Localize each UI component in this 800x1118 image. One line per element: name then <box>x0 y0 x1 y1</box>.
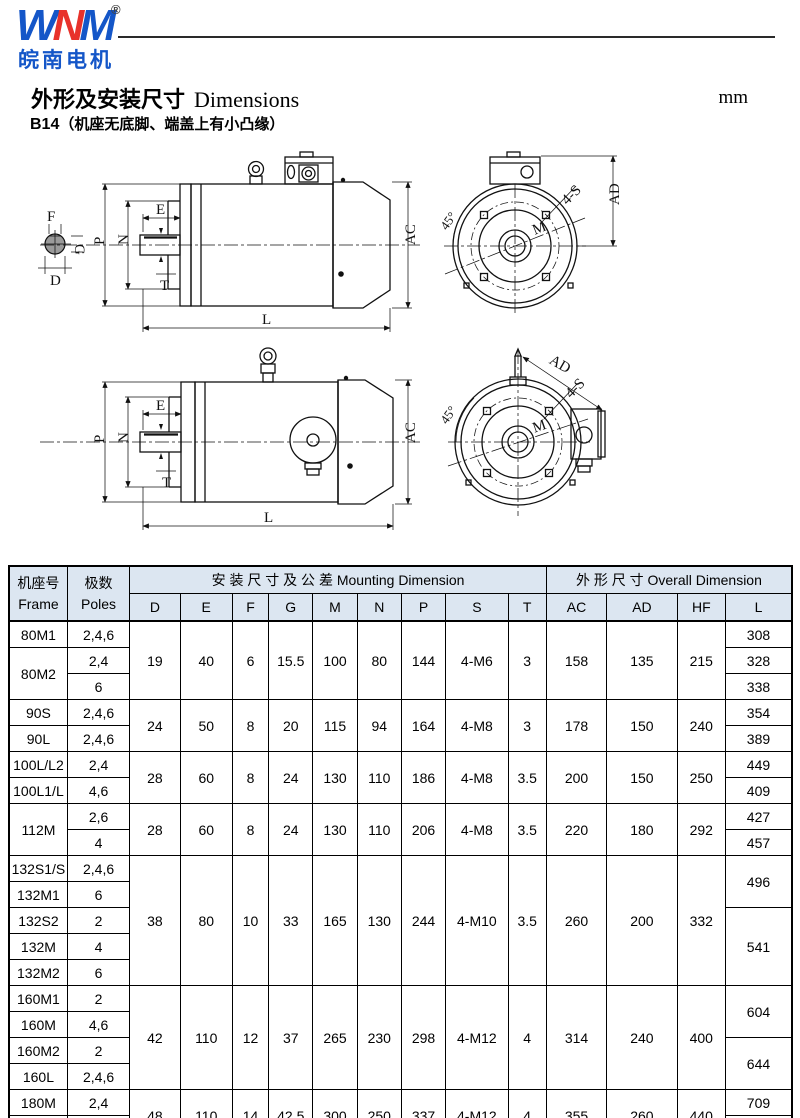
dim-label-m: M <box>530 219 548 239</box>
table-cell: 3 <box>508 621 546 700</box>
table-row: 160M124211012372652302984-M1243142404006… <box>9 986 792 1012</box>
table-cell: 496 <box>725 856 792 908</box>
motor-side-view-brake: P N E <box>40 348 420 530</box>
table-row: 90S2,4,62450820115941644-M83178150240354 <box>9 700 792 726</box>
dimension-table-body: 80M12,4,61940615.5100801444-M63158135215… <box>9 621 792 1118</box>
table-cell: 8 <box>232 752 268 804</box>
table-cell: 709 <box>725 1090 792 1116</box>
table-cell: 94 <box>357 700 401 752</box>
table-cell: 112M <box>9 804 67 856</box>
table-cell: 265 <box>313 986 357 1090</box>
table-cell: 338 <box>725 674 792 700</box>
table-cell: 409 <box>725 778 792 804</box>
table-cell: 160M <box>9 1012 67 1038</box>
logo-letter-w: W <box>16 1 53 50</box>
unit-label: mm <box>718 87 748 109</box>
logo-letter-m: M <box>79 1 111 50</box>
mounting-header-zh: 安 装 尺 寸 及 公 差 <box>212 572 333 588</box>
col-header-ad: AD <box>607 594 677 622</box>
table-cell: 38 <box>130 856 180 986</box>
table-cell: 644 <box>725 1038 792 1090</box>
table-cell: 10 <box>232 856 268 986</box>
page-title-zh: 外形及安装尺寸 <box>31 87 185 112</box>
table-cell: 2,4,6 <box>67 856 129 882</box>
table-cell: 132M <box>9 934 67 960</box>
table-cell: 180 <box>607 804 677 856</box>
technical-drawings: F G D P N E <box>28 144 683 556</box>
dim-label-f: F <box>47 209 55 225</box>
table-cell: 332 <box>677 856 725 986</box>
table-cell: 250 <box>357 1090 401 1118</box>
table-cell: 314 <box>546 986 606 1090</box>
mount-type-code: B14 <box>30 116 59 133</box>
table-cell: 178 <box>546 700 606 752</box>
table-cell: 2 <box>67 1038 129 1064</box>
table-cell: 186 <box>401 752 445 804</box>
table-cell: 354 <box>725 700 792 726</box>
table-cell: 2,4 <box>67 1090 129 1116</box>
dim-label-l2: L <box>264 510 273 526</box>
mounting-header-en: Mounting Dimension <box>337 572 465 588</box>
wnm-logo: WNM® <box>16 4 121 46</box>
table-row: 100L/L22,428608241301101864-M83.52001502… <box>9 752 792 778</box>
table-cell: 15.5 <box>269 621 313 700</box>
dim-label-e2: E <box>156 398 165 414</box>
table-cell: 28 <box>130 804 180 856</box>
table-cell: 132M2 <box>9 960 67 986</box>
table-cell: 300 <box>313 1090 357 1118</box>
table-cell: 130 <box>313 804 357 856</box>
table-cell: 4,6 <box>67 778 129 804</box>
table-cell: 48 <box>130 1090 180 1118</box>
table-cell: 80 <box>180 856 232 986</box>
table-cell: 3.5 <box>508 804 546 856</box>
table-cell: 8 <box>232 700 268 752</box>
table-cell: 8 <box>232 804 268 856</box>
table-cell: 60 <box>180 804 232 856</box>
table-cell: 240 <box>677 700 725 752</box>
overall-header-zh: 外 形 尺 寸 <box>576 572 644 588</box>
table-cell: 144 <box>401 621 445 700</box>
table-cell: 4-M8 <box>446 700 508 752</box>
table-cell: 110 <box>357 752 401 804</box>
table-row: 112M2,628608241301102064-M83.52201802924… <box>9 804 792 830</box>
table-cell: 457 <box>725 830 792 856</box>
frame-header-zh: 机座号 <box>10 573 67 593</box>
table-cell: 33 <box>269 856 313 986</box>
col-header-e: E <box>180 594 232 622</box>
dim-label-n: N <box>116 234 132 245</box>
table-cell: 60 <box>180 752 232 804</box>
col-header-hf: HF <box>677 594 725 622</box>
col-header-n: N <box>357 594 401 622</box>
catalog-page: WNM® 皖南电机 外形及安装尺寸Dimensions mm B14（机座无底脚… <box>0 0 800 1118</box>
table-cell: 260 <box>546 856 606 986</box>
table-cell: 244 <box>401 856 445 986</box>
table-cell: 135 <box>607 621 677 700</box>
table-cell: 4-M12 <box>446 986 508 1090</box>
dim-label-ad2: AD <box>546 352 573 377</box>
table-cell: 19 <box>130 621 180 700</box>
table-cell: 160M2 <box>9 1038 67 1064</box>
table-cell: 355 <box>546 1090 606 1118</box>
table-cell: 24 <box>269 752 313 804</box>
table-cell: 200 <box>607 856 677 986</box>
table-cell: 132S1/S <box>9 856 67 882</box>
group-header-overall: 外 形 尺 寸 Overall Dimension <box>546 566 792 594</box>
mount-type-subtitle: B14（机座无底脚、端盖上有小凸缘） <box>30 113 284 134</box>
col-header-d: D <box>130 594 180 622</box>
col-header-f: F <box>232 594 268 622</box>
table-cell: 328 <box>725 648 792 674</box>
table-cell: 3.5 <box>508 752 546 804</box>
table-cell: 42 <box>130 986 180 1090</box>
poles-header-en: Poles <box>68 594 129 614</box>
table-cell: 206 <box>401 804 445 856</box>
table-cell: 100 <box>313 621 357 700</box>
table-cell: 3 <box>508 700 546 752</box>
table-cell: 2,4,6 <box>67 726 129 752</box>
col-header-poles: 极数 Poles <box>67 566 129 621</box>
table-cell: 160L <box>9 1064 67 1090</box>
table-cell: 230 <box>357 986 401 1090</box>
holes-label-2: 4-S <box>562 376 588 402</box>
table-cell: 14 <box>232 1090 268 1118</box>
table-cell: 4 <box>508 986 546 1090</box>
mount-type-note: （机座无底脚、端盖上有小凸缘） <box>59 116 284 133</box>
table-cell: 4-M10 <box>446 856 508 986</box>
table-cell: 4-M8 <box>446 752 508 804</box>
table-cell: 130 <box>357 856 401 986</box>
table-cell: 3.5 <box>508 856 546 986</box>
table-cell: 110 <box>180 1090 232 1118</box>
table-cell: 220 <box>546 804 606 856</box>
table-cell: 40 <box>180 621 232 700</box>
table-cell: 215 <box>677 621 725 700</box>
table-row: 180M2,4481101442.53002503374-M1243552604… <box>9 1090 792 1116</box>
table-cell: 4,6 <box>67 1012 129 1038</box>
table-cell: 427 <box>725 804 792 830</box>
table-cell: 12 <box>232 986 268 1090</box>
table-cell: 150 <box>607 700 677 752</box>
table-cell: 42.5 <box>269 1090 313 1118</box>
table-cell: 132M1 <box>9 882 67 908</box>
table-cell: 4 <box>67 830 129 856</box>
table-cell: 541 <box>725 908 792 986</box>
table-cell: 240 <box>607 986 677 1090</box>
dim-label-n2: N <box>116 432 132 443</box>
dim-label-t2: T <box>162 475 171 491</box>
table-cell: 2,6 <box>67 804 129 830</box>
table-cell: 440 <box>677 1090 725 1118</box>
header-rule <box>118 36 775 38</box>
table-cell: 449 <box>725 752 792 778</box>
page-title-en: Dimensions <box>194 87 299 112</box>
table-cell: 110 <box>357 804 401 856</box>
poles-header-zh: 极数 <box>68 573 129 593</box>
table-cell: 90S <box>9 700 67 726</box>
table-cell: 604 <box>725 986 792 1038</box>
table-cell: 80M1 <box>9 621 67 648</box>
table-cell: 164 <box>401 700 445 752</box>
holes-label: 4-S <box>559 182 585 208</box>
page-title: 外形及安装尺寸Dimensions <box>31 82 299 114</box>
table-cell: 50 <box>180 700 232 752</box>
dim-label-ac2: AC <box>403 422 419 443</box>
table-cell: 165 <box>313 856 357 986</box>
motor-side-view-b14: F G D P N E <box>38 152 420 332</box>
table-cell: 4 <box>67 934 129 960</box>
table-cell: 200 <box>546 752 606 804</box>
dim-label-g: G <box>71 244 87 255</box>
table-cell: 2,4,6 <box>67 1064 129 1090</box>
group-header-mounting: 安 装 尺 寸 及 公 差 Mounting Dimension <box>130 566 547 594</box>
dim-label-e: E <box>156 202 165 218</box>
table-cell: 80 <box>357 621 401 700</box>
table-cell: 80M2 <box>9 648 67 700</box>
table-cell: 2,4,6 <box>67 621 129 648</box>
table-cell: 2 <box>67 986 129 1012</box>
dim-label-p: P <box>92 237 108 245</box>
table-cell: 2,4 <box>67 648 129 674</box>
table-cell: 90L <box>9 726 67 752</box>
dim-label-d: D <box>50 273 61 289</box>
table-cell: 4-M12 <box>446 1090 508 1118</box>
table-cell: 260 <box>607 1090 677 1118</box>
overall-header-en: Overall Dimension <box>648 572 762 588</box>
table-cell: 28 <box>130 752 180 804</box>
dim-label-t: T <box>160 278 169 294</box>
table-cell: 6 <box>67 960 129 986</box>
table-cell: 130 <box>313 752 357 804</box>
col-header-s: S <box>446 594 508 622</box>
motor-front-view-brake: M 45° 4-S AD <box>437 349 605 516</box>
table-cell: 20 <box>269 700 313 752</box>
table-cell: 180M <box>9 1090 67 1116</box>
table-header-row-groups: 机座号 Frame 极数 Poles 安 装 尺 寸 及 公 差 Mountin… <box>9 566 792 594</box>
table-cell: 2,4,6 <box>67 700 129 726</box>
table-cell: 158 <box>546 621 606 700</box>
frame-header-en: Frame <box>10 594 67 614</box>
col-header-frame: 机座号 Frame <box>9 566 67 621</box>
col-header-p: P <box>401 594 445 622</box>
table-cell: 4-M6 <box>446 621 508 700</box>
table-cell: 400 <box>677 986 725 1090</box>
col-header-m: M <box>313 594 357 622</box>
table-cell: 132S2 <box>9 908 67 934</box>
table-cell: 115 <box>313 700 357 752</box>
col-header-t: T <box>508 594 546 622</box>
table-cell: 4-M8 <box>446 804 508 856</box>
table-cell: 2,4 <box>67 752 129 778</box>
col-header-ac: AC <box>546 594 606 622</box>
table-cell: 298 <box>401 986 445 1090</box>
company-name: 皖南电机 <box>18 44 114 74</box>
table-cell: 337 <box>401 1090 445 1118</box>
dim-label-ac: AC <box>403 224 419 245</box>
registered-mark-icon: ® <box>111 2 121 17</box>
table-cell: 100L/L2 <box>9 752 67 778</box>
table-cell: 37 <box>269 986 313 1090</box>
table-cell: 6 <box>67 882 129 908</box>
table-cell: 250 <box>677 752 725 804</box>
logo-letter-n: N <box>53 1 80 50</box>
table-cell: 6 <box>232 621 268 700</box>
table-cell: 389 <box>725 726 792 752</box>
table-row: 80M12,4,61940615.5100801444-M63158135215… <box>9 621 792 648</box>
table-cell: 110 <box>180 986 232 1090</box>
motor-front-view-b14: M 45° 4-S AD <box>437 152 623 316</box>
col-header-l: L <box>725 594 792 622</box>
table-row: 132S1/S2,4,6388010331651302444-M103.5260… <box>9 856 792 882</box>
dimension-table: 机座号 Frame 极数 Poles 安 装 尺 寸 及 公 差 Mountin… <box>8 565 793 1118</box>
dim-label-l: L <box>262 312 271 328</box>
table-cell: 100L1/L <box>9 778 67 804</box>
table-cell: 160M1 <box>9 986 67 1012</box>
angle-label-2: 45° <box>437 403 460 427</box>
table-cell: 2 <box>67 908 129 934</box>
table-cell: 4 <box>508 1090 546 1118</box>
table-cell: 150 <box>607 752 677 804</box>
col-header-g: G <box>269 594 313 622</box>
table-cell: 292 <box>677 804 725 856</box>
table-cell: 308 <box>725 621 792 648</box>
angle-label: 45° <box>437 209 460 233</box>
table-cell: 24 <box>130 700 180 752</box>
table-cell: 24 <box>269 804 313 856</box>
table-cell: 6 <box>67 674 129 700</box>
dim-label-ad: AD <box>607 183 623 205</box>
